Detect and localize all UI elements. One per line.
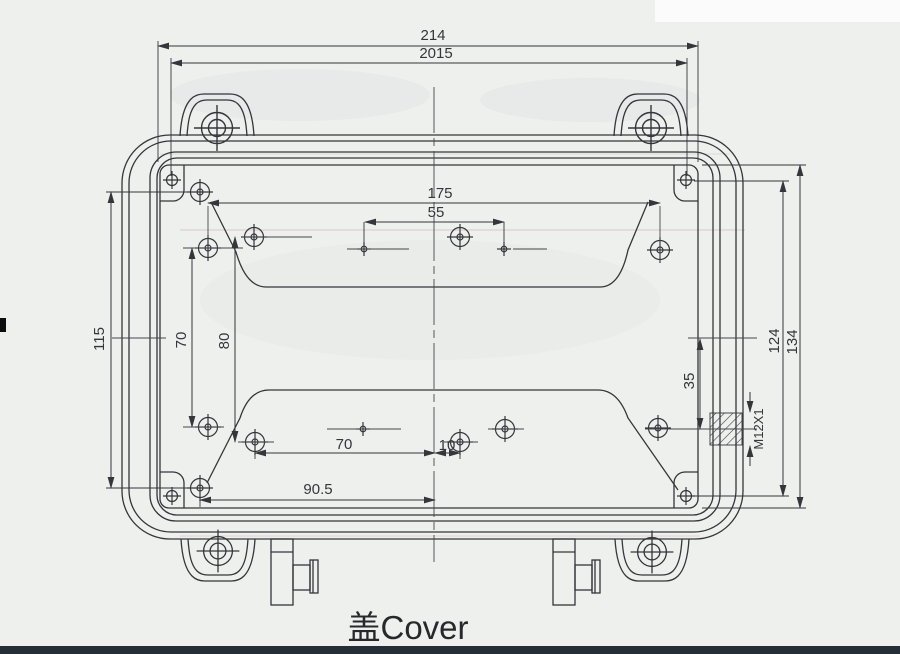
dim-label-bottom-span: 90.5	[303, 481, 332, 498]
dim-label-left-height: 115	[91, 327, 108, 351]
dim-label-left-col: 70	[173, 332, 190, 349]
dim-label-bottom-mid: 10	[439, 437, 456, 454]
dim-label-thread: M12X1	[751, 408, 766, 449]
drawing-title: 盖Cover	[347, 609, 468, 646]
corner-screw-hole	[163, 487, 181, 505]
corner-screw-hole	[677, 171, 695, 189]
engineering-drawing: 214 2015 175 55 115 70 80 124 134 35 M12…	[0, 0, 900, 654]
mounting-boss-bottom-right	[631, 531, 674, 574]
scan-bottom-strip	[0, 646, 900, 654]
dim-label-center-pair: 55	[428, 204, 445, 221]
dim-label-bottom-left: 70	[336, 436, 353, 453]
dim-label-holes-span: 175	[427, 185, 452, 202]
dim-label-right-holes: 124	[766, 328, 783, 353]
scan-artifacts	[0, 0, 900, 654]
cable-gland-right	[553, 539, 600, 605]
cable-gland-left	[271, 539, 318, 605]
corner-screw-hole	[163, 171, 181, 189]
corner-screw-hole	[677, 487, 695, 505]
dim-label-gland-offset: 35	[681, 373, 698, 390]
scanned-drawing-page: 214 2015 175 55 115 70 80 124 134 35 M12…	[0, 0, 900, 654]
dim-label-top-inner: 2015	[419, 45, 452, 62]
screw-hole	[645, 415, 671, 441]
scan-edge-mark	[0, 318, 6, 332]
dim-label-top-outer: 214	[420, 27, 445, 44]
dim-label-right-inner: 134	[784, 329, 801, 354]
dim-label-left-col2: 80	[216, 333, 233, 350]
